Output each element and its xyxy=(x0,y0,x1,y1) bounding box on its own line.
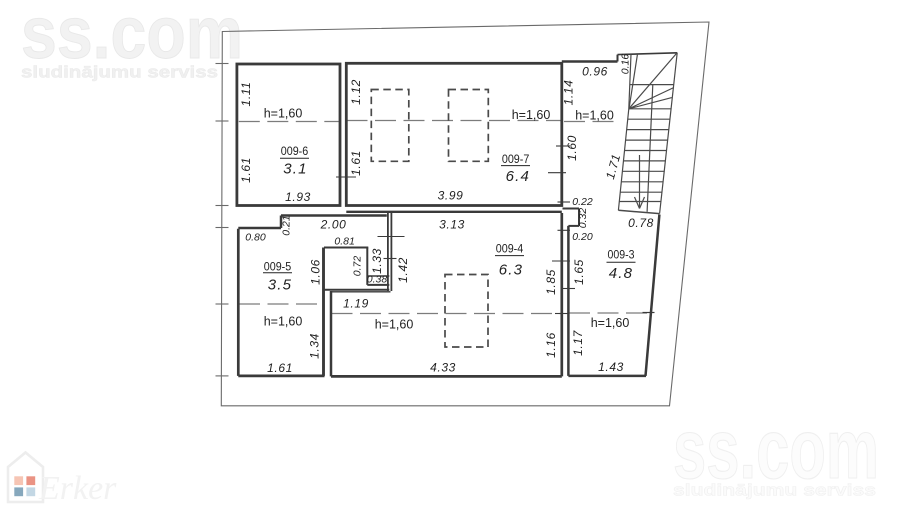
svg-text:1.19: 1.19 xyxy=(343,296,369,310)
svg-text:1.33: 1.33 xyxy=(370,248,384,274)
svg-text:009-3: 009-3 xyxy=(608,250,635,262)
svg-text:h=1,60: h=1,60 xyxy=(591,316,630,330)
svg-text:h=1,60: h=1,60 xyxy=(575,109,614,123)
svg-text:1.11: 1.11 xyxy=(239,82,253,107)
svg-text:4.8: 4.8 xyxy=(609,265,633,282)
svg-text:0.96: 0.96 xyxy=(582,65,608,79)
svg-text:3.5: 3.5 xyxy=(268,277,292,294)
svg-text:2.00: 2.00 xyxy=(320,218,347,232)
svg-text:3.1: 3.1 xyxy=(283,161,307,178)
svg-text:h=1,60: h=1,60 xyxy=(512,108,551,122)
svg-text:0.38: 0.38 xyxy=(367,273,388,285)
svg-text:009-4: 009-4 xyxy=(496,244,524,256)
svg-text:6.3: 6.3 xyxy=(499,262,523,279)
svg-text:h=1,60: h=1,60 xyxy=(264,315,303,329)
svg-text:1.61: 1.61 xyxy=(239,157,253,183)
svg-text:1.42: 1.42 xyxy=(396,257,410,283)
svg-text:sludinājumu serviss: sludinājumu serviss xyxy=(673,482,876,500)
svg-text:1.14: 1.14 xyxy=(562,80,576,106)
svg-text:009-6: 009-6 xyxy=(281,146,309,158)
svg-text:0.80: 0.80 xyxy=(245,232,266,244)
svg-text:0.22: 0.22 xyxy=(572,196,593,208)
svg-text:4.33: 4.33 xyxy=(430,361,456,375)
svg-text:1.17: 1.17 xyxy=(571,329,585,355)
svg-text:Erker: Erker xyxy=(38,470,117,507)
svg-text:1.85: 1.85 xyxy=(544,269,558,295)
svg-text:1.61: 1.61 xyxy=(267,361,293,375)
svg-text:0.32: 0.32 xyxy=(577,208,589,229)
svg-text:1.65: 1.65 xyxy=(572,259,586,285)
svg-text:3.13: 3.13 xyxy=(439,218,465,232)
svg-text:sludinājumu serviss: sludinājumu serviss xyxy=(21,63,218,82)
svg-text:0.72: 0.72 xyxy=(352,256,364,277)
svg-text:1.34: 1.34 xyxy=(308,333,322,359)
svg-text:6.4: 6.4 xyxy=(506,168,530,185)
svg-text:0.20: 0.20 xyxy=(572,231,593,243)
svg-text:0.21: 0.21 xyxy=(281,215,293,235)
svg-text:0.81: 0.81 xyxy=(334,236,354,248)
svg-text:1.60: 1.60 xyxy=(565,135,579,161)
svg-text:h=1,60: h=1,60 xyxy=(264,107,303,121)
svg-text:0.16: 0.16 xyxy=(620,54,632,75)
svg-text:1.93: 1.93 xyxy=(285,190,311,204)
svg-text:1.43: 1.43 xyxy=(598,360,624,374)
svg-text:1.16: 1.16 xyxy=(544,332,558,358)
svg-text:1.06: 1.06 xyxy=(309,259,323,285)
svg-text:3.99: 3.99 xyxy=(438,189,464,203)
svg-text:0.78: 0.78 xyxy=(628,216,654,230)
svg-text:1.61: 1.61 xyxy=(349,150,363,176)
svg-text:1.12: 1.12 xyxy=(349,79,363,105)
svg-text:009-5: 009-5 xyxy=(264,261,292,273)
svg-text:h=1,60: h=1,60 xyxy=(375,317,414,331)
svg-text:009-7: 009-7 xyxy=(502,154,530,166)
